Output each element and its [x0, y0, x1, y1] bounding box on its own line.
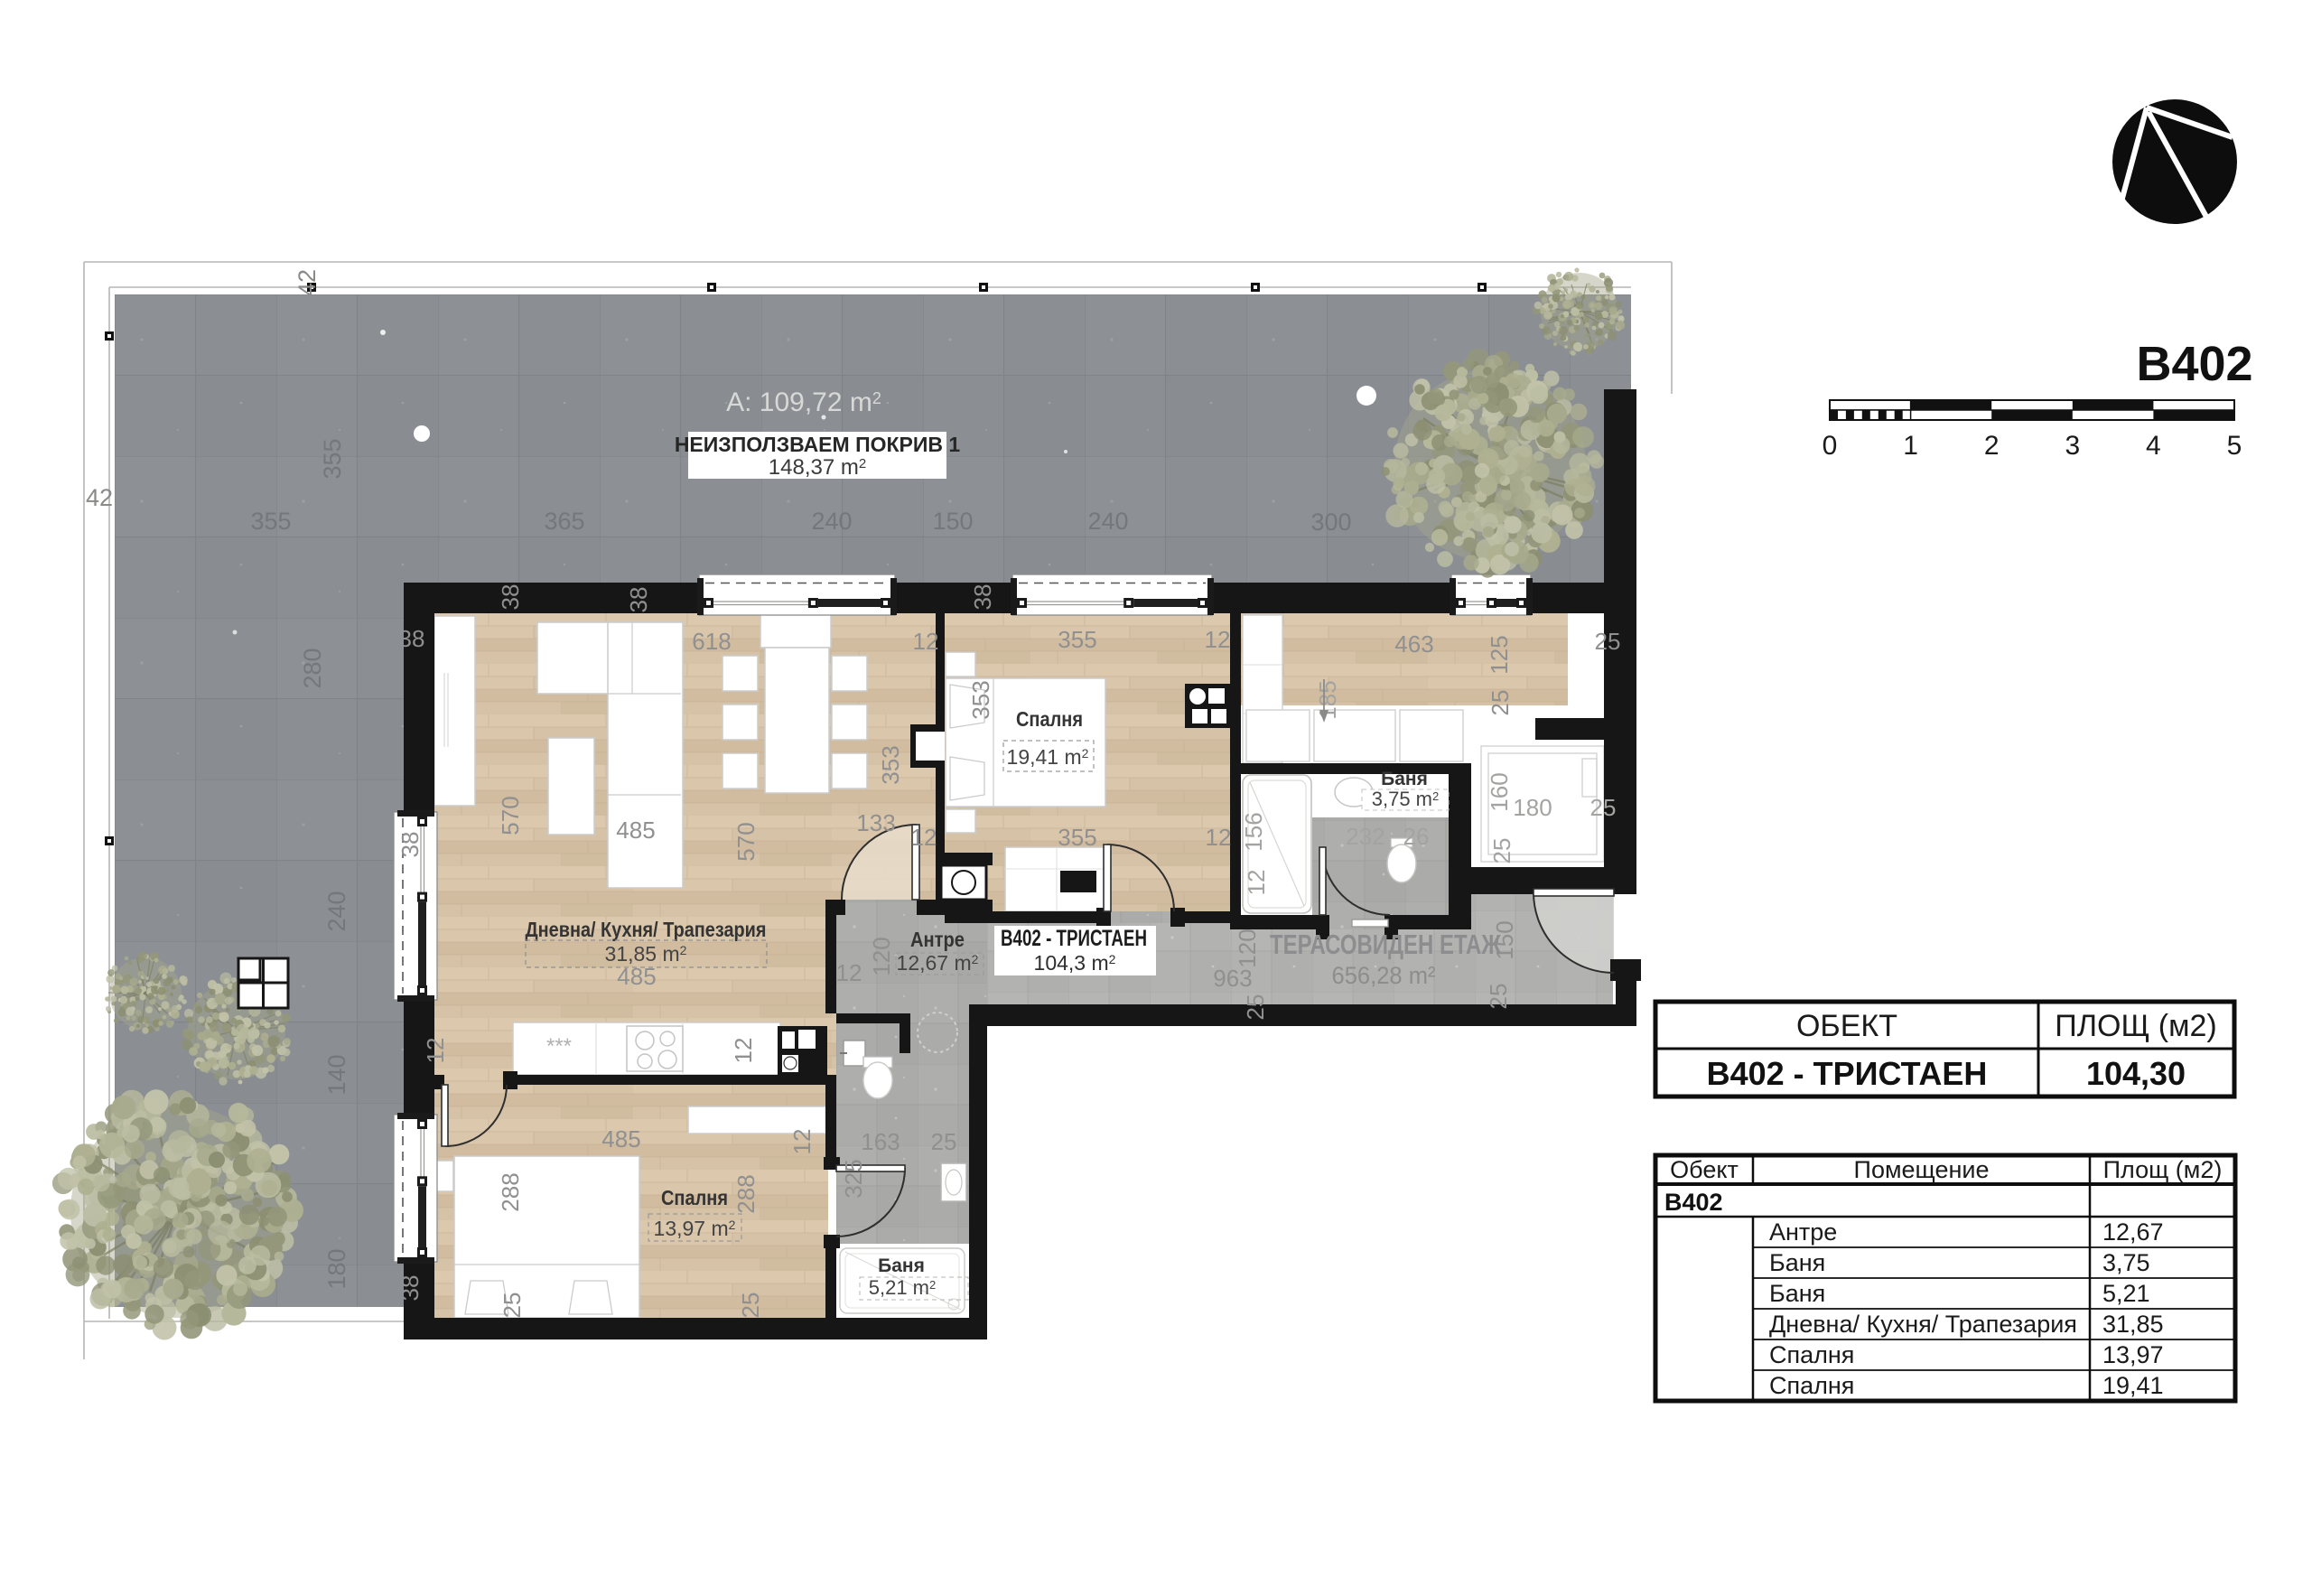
- svg-text:104,30: 104,30: [2086, 1055, 2186, 1092]
- svg-text:B402: B402: [2136, 337, 2252, 391]
- svg-text:12: 12: [730, 1038, 757, 1064]
- svg-text:0: 0: [1823, 431, 1838, 461]
- svg-text:12: 12: [788, 1129, 816, 1155]
- svg-text:485: 485: [601, 1125, 640, 1153]
- svg-text:355: 355: [1058, 824, 1096, 851]
- svg-text:240: 240: [1087, 508, 1128, 535]
- svg-text:288: 288: [497, 1172, 524, 1211]
- svg-text:180: 180: [323, 1248, 350, 1289]
- svg-text:42: 42: [294, 269, 321, 296]
- svg-text:НЕИЗПОЛЗВАЕМ ПОКРИВ 1: НЕИЗПОЛЗВАЕМ ПОКРИВ 1: [675, 433, 961, 456]
- svg-text:A: 109,72 m2: A: 109,72 m2: [726, 387, 881, 417]
- svg-text:12,67: 12,67: [2102, 1218, 2164, 1246]
- svg-text:Антре: Антре: [910, 928, 965, 951]
- svg-text:В402: В402: [1664, 1189, 1723, 1216]
- svg-text:В402 - ТРИСТАЕН: В402 - ТРИСТАЕН: [1707, 1055, 1988, 1092]
- svg-text:180: 180: [1513, 794, 1552, 821]
- svg-text:Спалня: Спалня: [661, 1186, 728, 1209]
- svg-text:13,97 m2: 13,97 m2: [654, 1217, 736, 1240]
- svg-text:42: 42: [86, 484, 113, 511]
- svg-text:280: 280: [299, 648, 326, 688]
- svg-text:12: 12: [422, 1038, 449, 1064]
- svg-text:656,28 m²: 656,28 m²: [1332, 962, 1436, 989]
- svg-text:120: 120: [868, 937, 895, 975]
- svg-text:Баня: Баня: [878, 1255, 925, 1276]
- svg-text:5,21: 5,21: [2102, 1280, 2150, 1307]
- svg-text:12: 12: [1205, 626, 1231, 653]
- svg-text:Спалня: Спалня: [1769, 1341, 1854, 1368]
- svg-text:25: 25: [931, 1128, 957, 1155]
- svg-text:25: 25: [1242, 994, 1269, 1021]
- svg-text:12: 12: [1206, 824, 1232, 851]
- svg-text:25: 25: [1590, 794, 1617, 821]
- svg-text:***: ***: [546, 1034, 572, 1059]
- svg-text:38: 38: [399, 625, 425, 652]
- svg-text:133: 133: [856, 809, 895, 836]
- svg-text:Баня: Баня: [1381, 769, 1428, 789]
- svg-text:19,41 m2: 19,41 m2: [1007, 745, 1089, 769]
- svg-text:12: 12: [913, 628, 939, 655]
- svg-text:570: 570: [497, 796, 524, 835]
- svg-text:1: 1: [1903, 431, 1918, 461]
- svg-text:38: 38: [625, 587, 652, 613]
- svg-text:Баня: Баня: [1769, 1249, 1825, 1276]
- svg-text:325: 325: [840, 1159, 867, 1198]
- svg-text:300: 300: [1310, 509, 1351, 536]
- svg-text:355: 355: [1058, 626, 1096, 653]
- svg-text:Баня: Баня: [1769, 1280, 1825, 1307]
- svg-text:В402 - ТРИСТАЕН: В402 - ТРИСТАЕН: [1001, 926, 1147, 951]
- svg-text:160: 160: [1486, 772, 1513, 811]
- svg-text:25: 25: [1485, 984, 1512, 1010]
- svg-text:140: 140: [323, 1054, 350, 1095]
- svg-text:4: 4: [2146, 431, 2161, 461]
- svg-text:150: 150: [932, 508, 973, 535]
- svg-text:Помещение: Помещение: [1854, 1156, 1990, 1183]
- svg-text:26: 26: [1403, 823, 1430, 850]
- svg-text:353: 353: [967, 680, 994, 719]
- svg-text:38: 38: [396, 1275, 424, 1302]
- svg-text:463: 463: [1394, 630, 1433, 658]
- svg-text:232: 232: [1346, 823, 1384, 850]
- svg-text:38: 38: [969, 584, 996, 611]
- svg-text:31,85: 31,85: [2102, 1311, 2164, 1338]
- svg-text:3,75: 3,75: [2102, 1249, 2150, 1276]
- svg-text:Спалня: Спалня: [1016, 707, 1083, 731]
- svg-text:Дневна/ Кухня/ Трапезария: Дневна/ Кухня/ Трапезария: [526, 918, 767, 941]
- svg-text:12: 12: [836, 959, 862, 986]
- svg-text:618: 618: [692, 628, 731, 655]
- svg-text:3,75 m2: 3,75 m2: [1372, 788, 1440, 810]
- svg-text:5: 5: [2227, 431, 2242, 461]
- svg-text:12,67 m2: 12,67 m2: [897, 951, 979, 975]
- svg-text:148,37 m2: 148,37 m2: [769, 455, 866, 480]
- svg-text:Антре: Антре: [1769, 1218, 1837, 1246]
- svg-text:ПЛОЩ (м2): ПЛОЩ (м2): [2055, 1009, 2216, 1043]
- svg-text:38: 38: [396, 832, 424, 858]
- svg-text:12: 12: [1243, 870, 1270, 896]
- svg-text:ОБЕКТ: ОБЕКТ: [1796, 1009, 1897, 1043]
- svg-text:240: 240: [811, 508, 852, 535]
- svg-text:485: 485: [616, 817, 655, 844]
- svg-text:163: 163: [861, 1128, 900, 1155]
- svg-text:25: 25: [499, 1293, 526, 1319]
- svg-text:25: 25: [1595, 628, 1621, 655]
- svg-text:38: 38: [497, 584, 524, 611]
- svg-text:120: 120: [1234, 929, 1261, 967]
- svg-text:13,97: 13,97: [2102, 1341, 2164, 1368]
- svg-text:240: 240: [323, 891, 350, 931]
- svg-text:2: 2: [1984, 431, 2000, 461]
- svg-text:156: 156: [1240, 812, 1267, 851]
- svg-text:104,3 m2: 104,3 m2: [1034, 951, 1116, 975]
- svg-text:Дневна/ Кухня/ Трапезария: Дневна/ Кухня/ Трапезария: [1769, 1311, 2077, 1338]
- svg-text:355: 355: [319, 438, 346, 479]
- svg-text:5,21 m2: 5,21 m2: [869, 1276, 937, 1299]
- svg-text:288: 288: [732, 1174, 760, 1213]
- svg-text:355: 355: [250, 508, 291, 535]
- svg-text:353: 353: [877, 745, 904, 784]
- svg-text:12: 12: [911, 824, 937, 851]
- svg-text:31,85 m2: 31,85 m2: [605, 942, 687, 966]
- svg-text:25: 25: [737, 1293, 764, 1319]
- svg-text:19,41: 19,41: [2102, 1372, 2164, 1399]
- svg-text:ТЕРАСОВИДЕН ЕТАЖ: ТЕРАСОВИДЕН ЕТАЖ: [1270, 929, 1502, 960]
- svg-text:570: 570: [732, 822, 760, 861]
- svg-text:Площ (м2): Площ (м2): [2103, 1156, 2223, 1183]
- svg-text:Спалня: Спалня: [1769, 1372, 1854, 1399]
- svg-text:Обект: Обект: [1670, 1156, 1739, 1183]
- svg-text:365: 365: [544, 508, 584, 535]
- svg-text:25: 25: [1488, 838, 1515, 864]
- svg-text:125: 125: [1486, 635, 1513, 674]
- svg-text:3: 3: [2065, 431, 2080, 461]
- svg-text:25: 25: [1487, 690, 1514, 716]
- svg-text:185: 185: [1314, 680, 1341, 719]
